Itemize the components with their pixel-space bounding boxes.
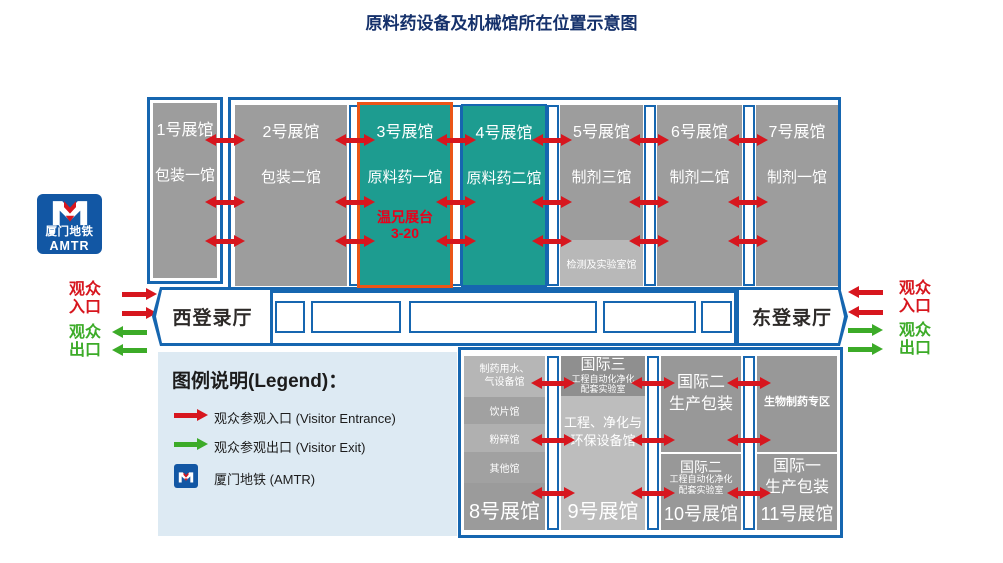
hall-2: 2号展馆 包装二馆 — [235, 105, 347, 286]
double-arrow-icon — [335, 134, 375, 146]
metro-logo: 厦门地铁 AMTR — [37, 194, 102, 254]
hall-8-number: 8号展馆 — [464, 495, 545, 524]
legend-metro-label: 厦门地铁 (AMTR) — [214, 469, 315, 488]
hall-3: 3号展馆 原料药一馆 温兄展台 3-20 — [357, 102, 453, 288]
metro-m-icon — [177, 470, 195, 483]
hall-6-name: 制剂二馆 — [657, 166, 742, 187]
right-exit-label: 观众 出口 — [888, 322, 942, 358]
hall-9-number: 9号展馆 — [561, 495, 645, 524]
exhibition-map: 原料药设备及机械馆所在位置示意图 厦门地铁 AMTR 观众 入口 观众 出口 观… — [0, 0, 1003, 563]
hall-9-top-title: 国际三 — [561, 357, 645, 374]
double-arrow-icon — [727, 377, 771, 389]
double-arrow-icon — [436, 196, 476, 208]
double-arrow-icon — [629, 134, 669, 146]
exit-arrow-icon — [112, 344, 147, 356]
legend-title: 图例说明(Legend)： — [172, 366, 347, 393]
metro-logo-icon — [174, 464, 198, 488]
double-arrow-icon — [728, 235, 768, 247]
corridor-booth-block — [275, 301, 305, 333]
legend-panel: 图例说明(Legend)： 观众参观入口 (Visitor Entrance) … — [158, 352, 457, 536]
left-exit-label: 观众 出口 — [58, 324, 112, 360]
exit-arrow-icon — [848, 324, 883, 336]
legend-exit-label: 观众参观出口 (Visitor Exit) — [214, 437, 365, 456]
double-arrow-icon — [205, 196, 245, 208]
exit-arrow-icon — [112, 326, 147, 338]
east-registration-label: 东登录厅 — [736, 287, 848, 346]
hall-11-upper-label: 生物制药专区 — [757, 393, 837, 409]
hall-8-segment: 其他馆 — [464, 452, 545, 483]
double-arrow-icon — [532, 196, 572, 208]
hall-2-name: 包装二馆 — [235, 166, 347, 187]
hall-10-number: 10号展馆 — [661, 500, 741, 526]
double-arrow-icon — [631, 487, 675, 499]
hall-4-name: 原料药二馆 — [463, 167, 545, 188]
double-arrow-icon — [532, 134, 572, 146]
exit-arrow-icon — [174, 438, 208, 450]
hall-10-divider — [661, 452, 741, 454]
hall-8-segment: 饮片馆 — [464, 397, 545, 424]
double-arrow-icon — [205, 134, 245, 146]
west-registration-label: 西登录厅 — [152, 287, 273, 346]
double-arrow-icon — [531, 377, 575, 389]
corridor-booth-block — [311, 301, 401, 333]
hall-1: 1号展馆 包装一馆 — [147, 97, 223, 284]
double-arrow-icon — [436, 134, 476, 146]
double-arrow-icon — [532, 235, 572, 247]
booth-name: 温兄展台 — [360, 210, 450, 225]
hall-7-name: 制剂一馆 — [756, 166, 838, 187]
double-arrow-icon — [631, 377, 675, 389]
exit-arrow-icon — [848, 343, 883, 355]
hall-3-name: 原料药一馆 — [360, 166, 450, 187]
corridor-booth-block — [603, 301, 696, 333]
metro-name: 厦门地铁 — [46, 226, 94, 239]
double-arrow-icon — [335, 235, 375, 247]
halls-2-7-block: 2号展馆 包装二馆 3号展馆 原料药一馆 温兄展台 3-20 4号展馆 原料药二… — [228, 97, 841, 290]
hall-5-name: 制剂三馆 — [560, 166, 643, 187]
entrance-arrow-icon — [848, 286, 883, 298]
legend-entrance-label: 观众参观入口 (Visitor Entrance) — [214, 408, 396, 427]
double-arrow-icon — [728, 196, 768, 208]
hall-9-top-segment: 国际三 工程自动化净化 配套实验室 — [561, 356, 645, 396]
left-entrance-label: 观众 入口 — [58, 281, 112, 317]
double-arrow-icon — [631, 434, 675, 446]
hall-2-number: 2号展馆 — [235, 118, 347, 142]
entrance-arrow-icon — [174, 409, 208, 421]
hall-1-name: 包装一馆 — [153, 164, 217, 185]
west-registration-hall: 西登录厅 — [152, 287, 273, 346]
double-arrow-icon — [629, 235, 669, 247]
double-arrow-icon — [629, 196, 669, 208]
double-arrow-icon — [727, 434, 771, 446]
east-registration-hall: 东登录厅 — [736, 287, 848, 346]
hall-7: 7号展馆 制剂一馆 — [756, 105, 838, 286]
entrance-arrow-icon — [848, 306, 883, 318]
corridor-booth-block — [409, 301, 597, 333]
double-arrow-icon — [205, 235, 245, 247]
double-arrow-icon — [436, 235, 476, 247]
double-arrow-icon — [531, 434, 575, 446]
hall-11-divider — [757, 452, 837, 454]
double-arrow-icon — [335, 196, 375, 208]
hall-11-number: 11号展馆 — [757, 500, 837, 526]
right-entrance-label: 观众 入口 — [888, 280, 942, 316]
page-title: 原料药设备及机械馆所在位置示意图 — [0, 9, 1003, 34]
corridor-booth-block — [701, 301, 732, 333]
double-arrow-icon — [728, 134, 768, 146]
metro-abbr: AMTR — [49, 239, 89, 253]
metro-m-icon — [48, 196, 92, 226]
double-arrow-icon — [531, 487, 575, 499]
hall-7-number: 7号展馆 — [756, 118, 838, 142]
double-arrow-icon — [727, 487, 771, 499]
central-corridor — [270, 290, 737, 346]
